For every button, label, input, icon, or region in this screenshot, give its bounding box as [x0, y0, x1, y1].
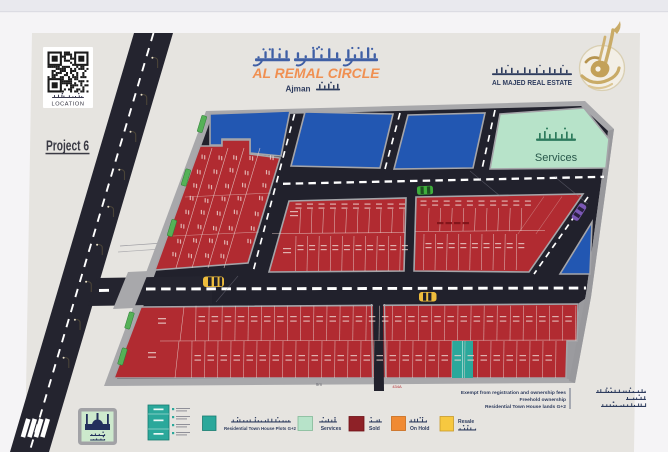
svg-text:434A: 434A — [392, 384, 402, 389]
svg-text:Residential Town House lands G: Residential Town House lands G+2 — [485, 404, 566, 410]
svg-text:On Hold: On Hold — [410, 426, 429, 432]
svg-text:LOCATION: LOCATION — [52, 102, 85, 108]
svg-text:Ajman: Ajman — [285, 85, 310, 94]
svg-text:Sold: Sold — [369, 426, 380, 432]
svg-text:Services: Services — [535, 152, 578, 164]
svg-text:Residential Town House Plots G: Residential Town House Plots G+2 — [224, 426, 296, 432]
svg-text:AL MAJED REAL ESTATE: AL MAJED REAL ESTATE — [492, 80, 572, 87]
svg-text:Exempt from registration and o: Exempt from registration and ownership f… — [461, 390, 566, 396]
svg-text:Services: Services — [321, 426, 342, 432]
svg-text:Freehold ownership: Freehold ownership — [520, 397, 566, 403]
svg-text:Project 6: Project 6 — [46, 139, 89, 155]
svg-text:9m: 9m — [316, 382, 323, 387]
svg-text:AL REMAL CIRCLE: AL REMAL CIRCLE — [252, 65, 381, 81]
svg-text:Resale: Resale — [458, 419, 474, 425]
